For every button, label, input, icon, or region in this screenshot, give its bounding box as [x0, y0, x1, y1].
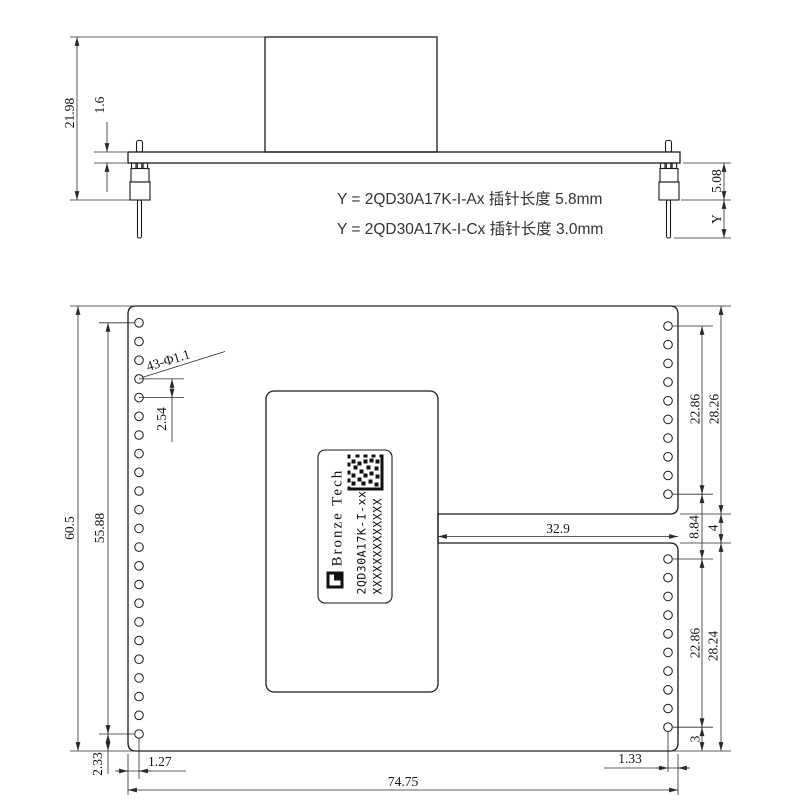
svg-text:1.33: 1.33: [618, 751, 642, 766]
svg-text:32.9: 32.9: [546, 521, 570, 536]
dim-right-bottom-height: 28.24: [706, 543, 722, 751]
dim-right-mid-gap: 8.84: [687, 494, 703, 559]
label-brand: Bronze Tech: [330, 469, 346, 567]
engineering-drawing-page: 21.98 1.6 5.08 Y Y = 2QD30A17K-I-Ax 插针长度…: [0, 0, 792, 808]
svg-text:5.08: 5.08: [709, 169, 724, 193]
side-view: 21.98 1.6 5.08 Y Y = 2QD30A17K-I-Ax 插针长度…: [62, 37, 731, 238]
svg-text:60.5: 60.5: [62, 516, 77, 540]
pcb-board-side: [128, 152, 680, 163]
label-model: 2QD30A17K-I-xx: [355, 491, 369, 595]
svg-text:2.33: 2.33: [90, 752, 105, 776]
dim-hole-pitch: 2.54: [139, 379, 184, 442]
svg-text:22.86: 22.86: [688, 628, 703, 659]
plan-view: 60.5 55.88 2.33 43-Φ1.1 2.54: [62, 306, 731, 795]
note-pin-length-cx: Y = 2QD30A17K-I-Cx 插针长度 3.0mm: [337, 220, 603, 238]
svg-text:28.26: 28.26: [707, 394, 722, 425]
svg-text:21.98: 21.98: [62, 98, 77, 129]
svg-text:74.75: 74.75: [388, 774, 419, 789]
svg-text:2.54: 2.54: [154, 407, 169, 431]
right-hole-column-bottom: [664, 555, 673, 732]
note-pin-length-ax: Y = 2QD30A17K-I-Ax 插针长度 5.8mm: [337, 190, 602, 208]
dim-right-edge-offset: 1.33: [604, 732, 690, 796]
svg-text:22.86: 22.86: [688, 394, 703, 425]
svg-text:Y: Y: [709, 214, 724, 224]
dim-slot-length: 32.9: [438, 521, 678, 537]
dim-total-height: 21.98: [62, 37, 266, 200]
module-body-side: [265, 37, 437, 152]
dim-overall-width: 74.75: [128, 774, 678, 790]
drawing-canvas: 21.98 1.6 5.08 Y Y = 2QD30A17K-I-Ax 插针长度…: [0, 0, 792, 808]
dim-housing-height: 5.08: [681, 163, 731, 200]
right-hole-column-top: [664, 322, 673, 499]
brand-logo-icon: [327, 572, 344, 589]
svg-text:1.6: 1.6: [92, 96, 107, 113]
svg-text:3: 3: [688, 735, 703, 742]
hole-callout: 43-Φ1.1: [142, 346, 225, 377]
dim-overall-height: 60.5: [62, 306, 78, 751]
label-serial: XXXXXXXXXXXXX: [371, 498, 385, 595]
svg-text:55.88: 55.88: [92, 513, 107, 544]
svg-text:8.84: 8.84: [687, 515, 702, 539]
svg-text:1.27: 1.27: [148, 754, 172, 769]
datamatrix-icon: [348, 455, 384, 491]
svg-text:43-Φ1.1: 43-Φ1.1: [144, 346, 191, 373]
svg-text:4: 4: [706, 524, 721, 531]
dim-board-thickness: 1.6: [92, 96, 127, 192]
left-hole-column: [135, 319, 144, 739]
svg-text:28.24: 28.24: [706, 631, 721, 662]
product-label: Bronze Tech 2QD30A17K-I-xx XXXXXXXXXXXXX: [318, 450, 392, 603]
pcb-outline: [128, 306, 678, 751]
dim-right-bottom-offset: 3: [688, 727, 703, 751]
dim-left-edge-offset: 1.27: [115, 739, 186, 796]
left-pin-assembly: [130, 141, 150, 239]
module-body-outline: [266, 391, 438, 692]
right-pin-assembly: [659, 141, 679, 239]
dim-pin-length-y: Y: [674, 200, 731, 238]
dim-left-bottom-offset: 2.33: [90, 734, 108, 776]
